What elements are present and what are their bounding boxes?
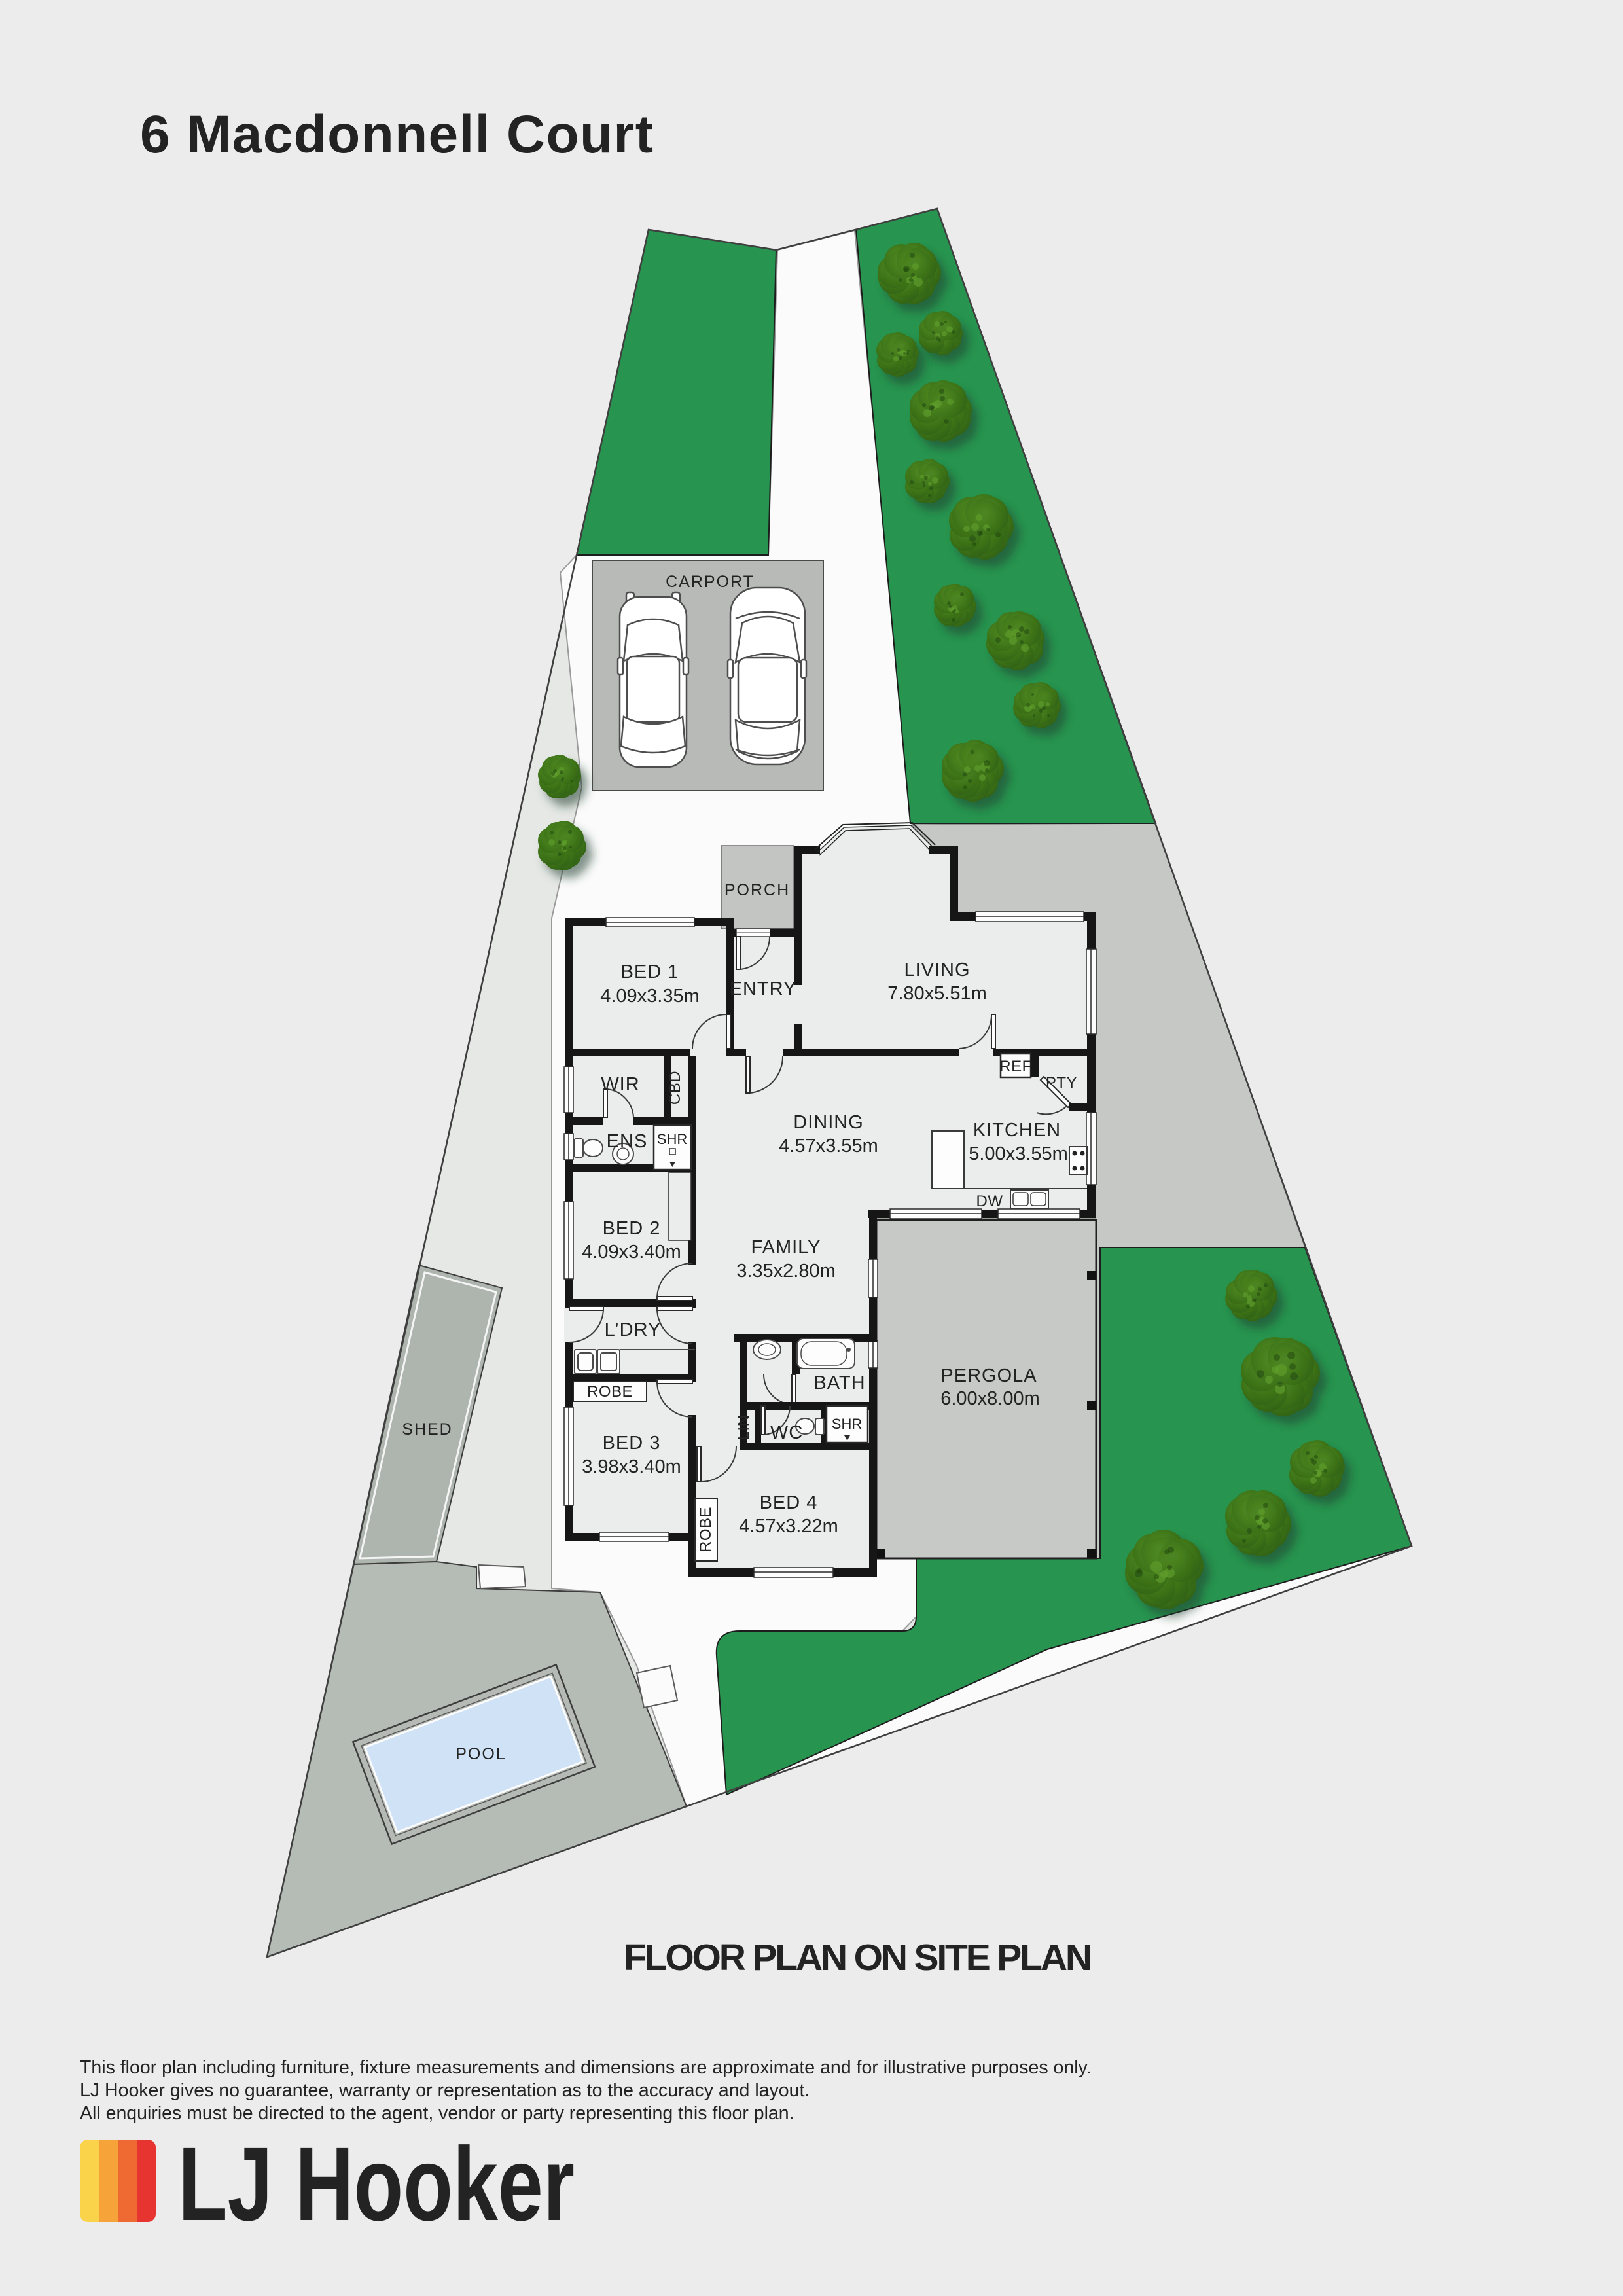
svg-text:4.57x3.22m: 4.57x3.22m <box>739 1516 838 1537</box>
svg-text:LJ Hooker: LJ Hooker <box>178 2125 575 2242</box>
svg-text:ROBE: ROBE <box>697 1507 715 1552</box>
svg-text:BED 1: BED 1 <box>621 961 679 982</box>
svg-text:PERGOLA: PERGOLA <box>940 1365 1037 1386</box>
svg-text:4.57x3.55m: 4.57x3.55m <box>779 1136 878 1157</box>
svg-text:CARPORT: CARPORT <box>666 573 755 591</box>
svg-text:KITCHEN: KITCHEN <box>973 1120 1061 1141</box>
svg-text:LIN: LIN <box>735 1415 753 1441</box>
svg-text:SHR: SHR <box>832 1416 862 1432</box>
svg-text:BED 2: BED 2 <box>603 1218 661 1239</box>
svg-text:LJ Hooker gives no guarantee,: LJ Hooker gives no guarantee, warranty o… <box>80 2080 810 2101</box>
svg-text:6 Macdonnell Court: 6 Macdonnell Court <box>140 105 653 164</box>
svg-text:5.00x3.55m: 5.00x3.55m <box>969 1143 1068 1164</box>
svg-text:REF: REF <box>999 1058 1032 1075</box>
svg-text:ENTRY: ENTRY <box>730 978 797 999</box>
svg-text:L’DRY: L’DRY <box>605 1319 662 1340</box>
svg-text:3.98x3.40m: 3.98x3.40m <box>582 1456 681 1477</box>
svg-text:LIVING: LIVING <box>904 960 970 980</box>
svg-text:WIR: WIR <box>601 1074 639 1095</box>
svg-text:BATH: BATH <box>813 1372 865 1393</box>
svg-text:SHR: SHR <box>657 1131 687 1147</box>
svg-text:7.80x5.51m: 7.80x5.51m <box>887 983 987 1004</box>
svg-text:DW: DW <box>976 1193 1003 1210</box>
svg-text:POOL: POOL <box>455 1745 506 1763</box>
svg-text:6.00x8.00m: 6.00x8.00m <box>940 1388 1040 1409</box>
svg-text:3.35x2.80m: 3.35x2.80m <box>736 1261 836 1282</box>
svg-text:BED 4: BED 4 <box>760 1492 818 1513</box>
svg-text:This floor plan including furn: This floor plan including furniture, fix… <box>80 2057 1092 2078</box>
svg-text:ROBE: ROBE <box>587 1383 633 1401</box>
svg-text:All enquiries must be directed: All enquiries must be directed to the ag… <box>80 2103 794 2124</box>
svg-text:FAMILY: FAMILY <box>751 1237 821 1258</box>
svg-text:WC: WC <box>770 1422 803 1443</box>
svg-text:CBD: CBD <box>666 1071 684 1105</box>
svg-text:SHED: SHED <box>402 1420 452 1439</box>
svg-text:PTY: PTY <box>1046 1074 1077 1092</box>
svg-text:4.09x3.35m: 4.09x3.35m <box>600 986 700 1007</box>
svg-text:PORCH: PORCH <box>724 881 790 899</box>
svg-text:4.09x3.40m: 4.09x3.40m <box>582 1242 681 1263</box>
svg-text:DINING: DINING <box>793 1112 864 1133</box>
svg-text:FLOOR PLAN ON SITE PLAN: FLOOR PLAN ON SITE PLAN <box>624 1937 1092 1979</box>
svg-text:ENS: ENS <box>607 1131 648 1152</box>
svg-text:BED 3: BED 3 <box>603 1433 661 1454</box>
